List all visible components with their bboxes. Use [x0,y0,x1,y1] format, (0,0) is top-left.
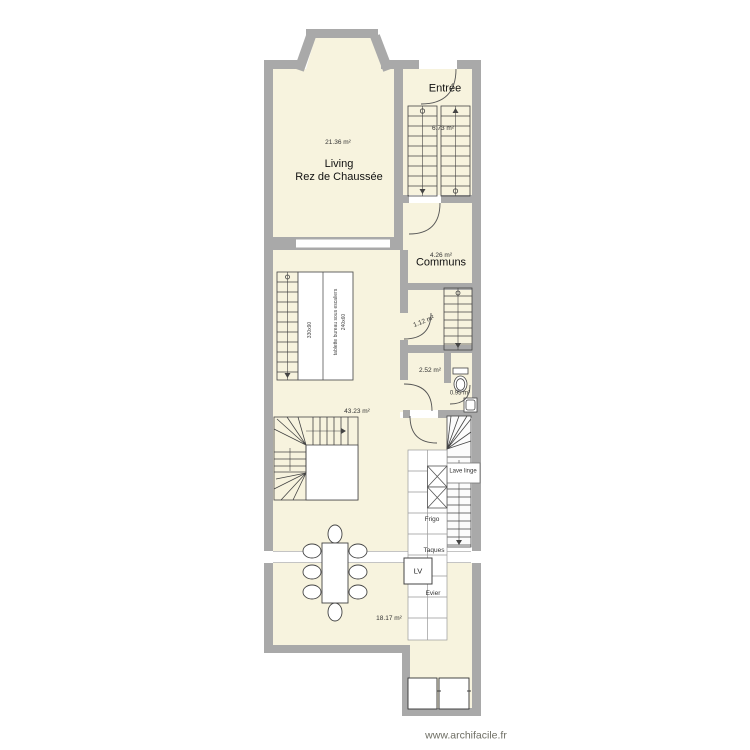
taques-label: Taques [424,547,445,555]
wall-bay-top [306,29,378,38]
wall-vestibule-bottom-a [403,410,410,418]
chair [349,544,367,558]
storage-unit [408,678,437,709]
wall-reduit-bottom [403,345,472,353]
living-area-label: 21.36 m² [325,139,351,147]
lave-linge-label: Lave linge [449,468,476,475]
opening-living-sejour [296,240,390,248]
chair [349,565,367,579]
living-name-label: Living Rez de Chaussée [295,158,382,184]
communs-name-label: Communs [416,256,466,269]
lv-label: LV [414,567,423,576]
frigo-label: Frigo [425,516,440,524]
reduit-floor [403,290,472,345]
desk-dim-right-label: 240x60 [341,314,347,330]
floor-plan-canvas: 21.36 m² Living Rez de Chaussée Entrée 6… [0,0,750,750]
wall-communs-bottom [403,283,472,290]
chair [303,544,321,558]
entree-area-label: 6.73 m² [432,125,454,133]
wc-area-label: 0.95 m² [450,390,470,397]
vestibule-area-label: 2.52 m² [419,367,441,375]
dining-table [322,543,348,603]
entry-door-gap [419,60,457,69]
chair [303,565,321,579]
cuisine-area-label: 18.17 m² [376,615,402,623]
living-name-line2: Rez de Chaussée [295,171,382,184]
wall-corridor-a [400,250,408,313]
wall-bottom-left [264,645,410,653]
communs-floor [403,203,472,283]
patch-door2 [400,378,408,412]
living-name-line1: Living [295,158,382,171]
chair [328,603,342,621]
sink-icon [464,398,477,412]
wall-right [472,60,481,716]
chair [303,585,321,599]
wall-living-right [394,69,403,237]
wall-top-living-right [381,60,403,69]
chair [349,585,367,599]
hob-cells [428,466,448,508]
patch-door1 [400,313,408,340]
chair [328,525,342,543]
storage-units [408,678,471,709]
sejour-area-label: 43.23 m² [344,408,370,416]
entree-name-label: Entrée [429,82,461,95]
watermark: www.archifacile.fr [425,730,507,743]
storage-unit [439,678,469,709]
opening-band [264,551,481,563]
floor-plan-drawing [0,0,750,750]
toilet-icon [453,368,468,392]
desk-label: tablette bureau sous escaliers [333,289,339,355]
wall-left [264,60,273,652]
wall-wc-divider [444,353,451,383]
desk-dim-left-label: 330x90 [307,322,313,338]
evier-label: Evier [426,590,441,598]
